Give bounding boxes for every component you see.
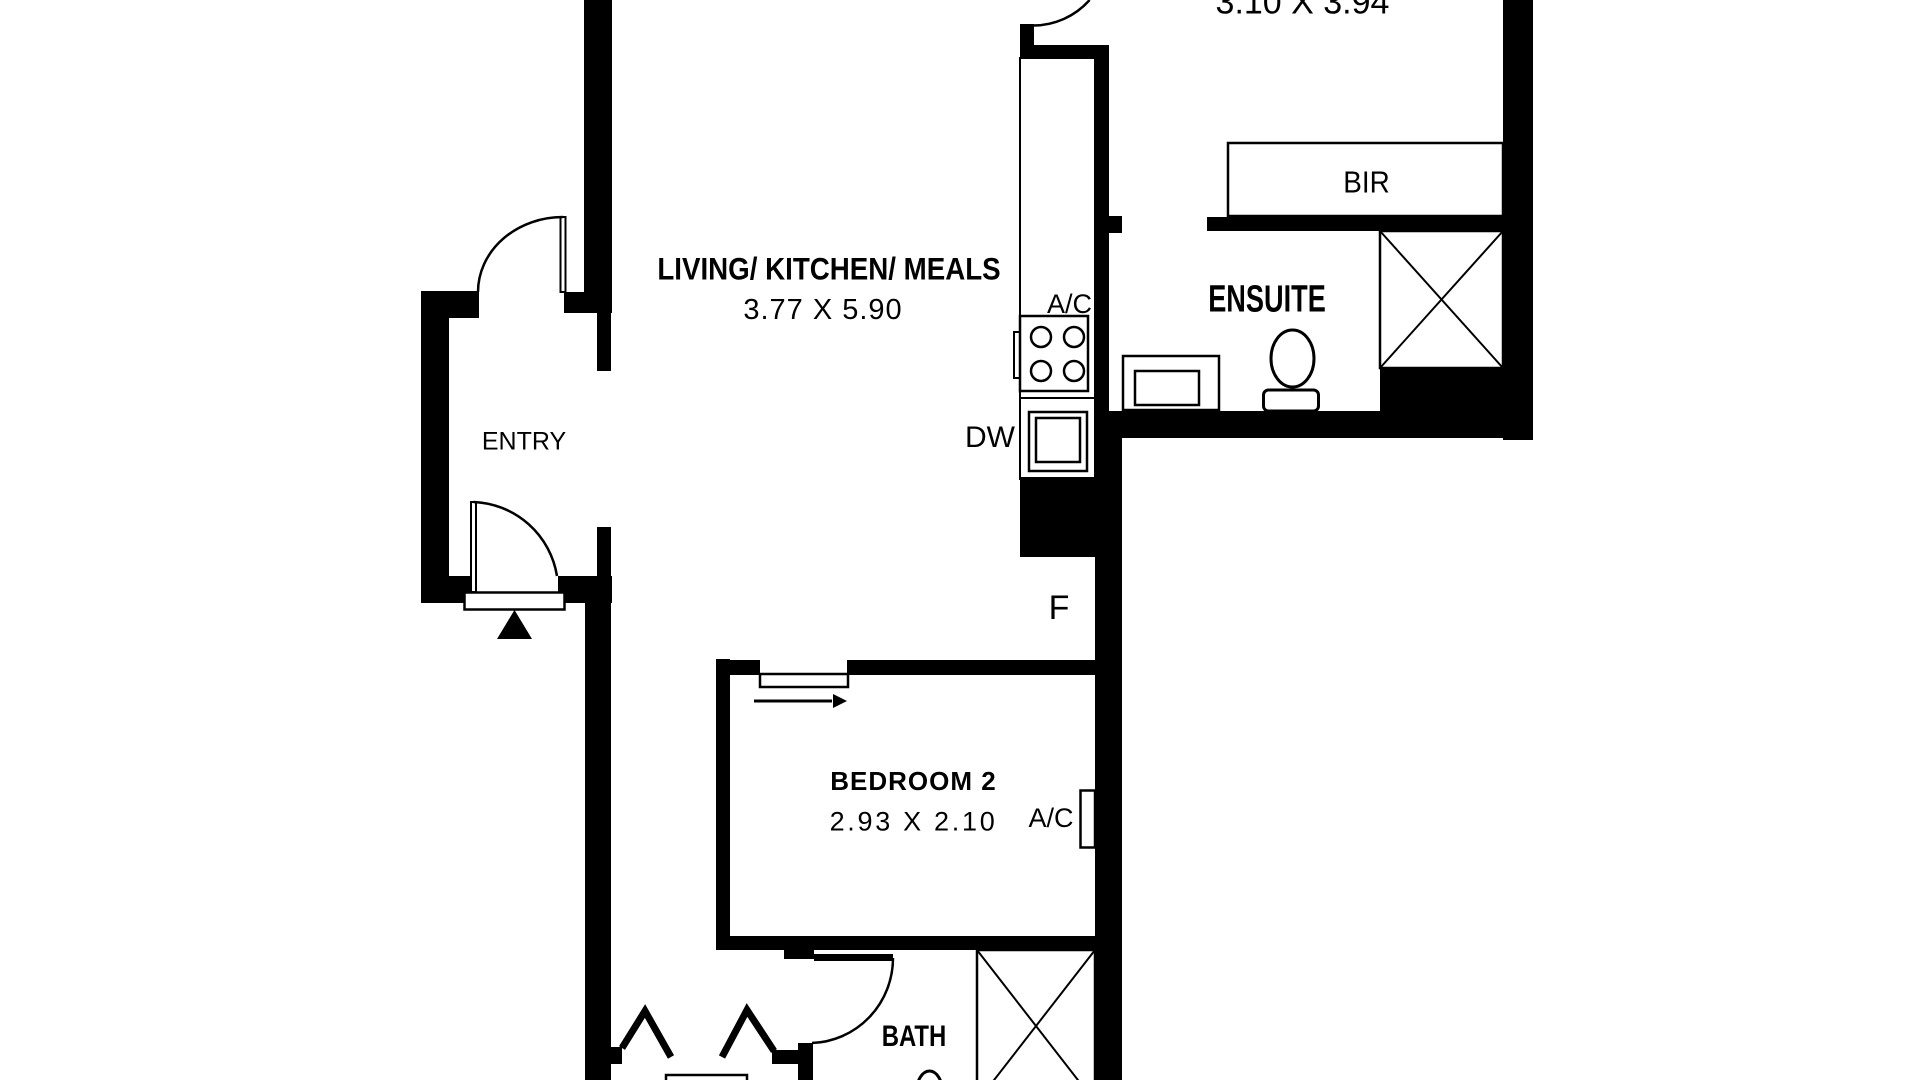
svg-text:BEDROOM 2: BEDROOM 2 <box>830 766 996 796</box>
svg-text:DW: DW <box>965 421 1016 454</box>
svg-text:LIVING/ KITCHEN/ MEALS: LIVING/ KITCHEN/ MEALS <box>657 252 1000 287</box>
svg-text:F: F <box>1049 589 1070 627</box>
svg-text:A/C: A/C <box>1028 803 1073 833</box>
svg-text:BATH: BATH <box>882 1020 947 1053</box>
svg-text:A/C: A/C <box>1047 289 1092 319</box>
svg-text:3.10 X 3.94: 3.10 X 3.94 <box>1216 0 1390 22</box>
svg-text:2.93 X 2.10: 2.93 X 2.10 <box>830 807 998 837</box>
svg-text:ENSUITE: ENSUITE <box>1208 277 1326 319</box>
svg-text:3.77 X 5.90: 3.77 X 5.90 <box>743 294 902 326</box>
svg-text:BIR: BIR <box>1343 165 1390 200</box>
svg-text:ENTRY: ENTRY <box>482 428 567 456</box>
